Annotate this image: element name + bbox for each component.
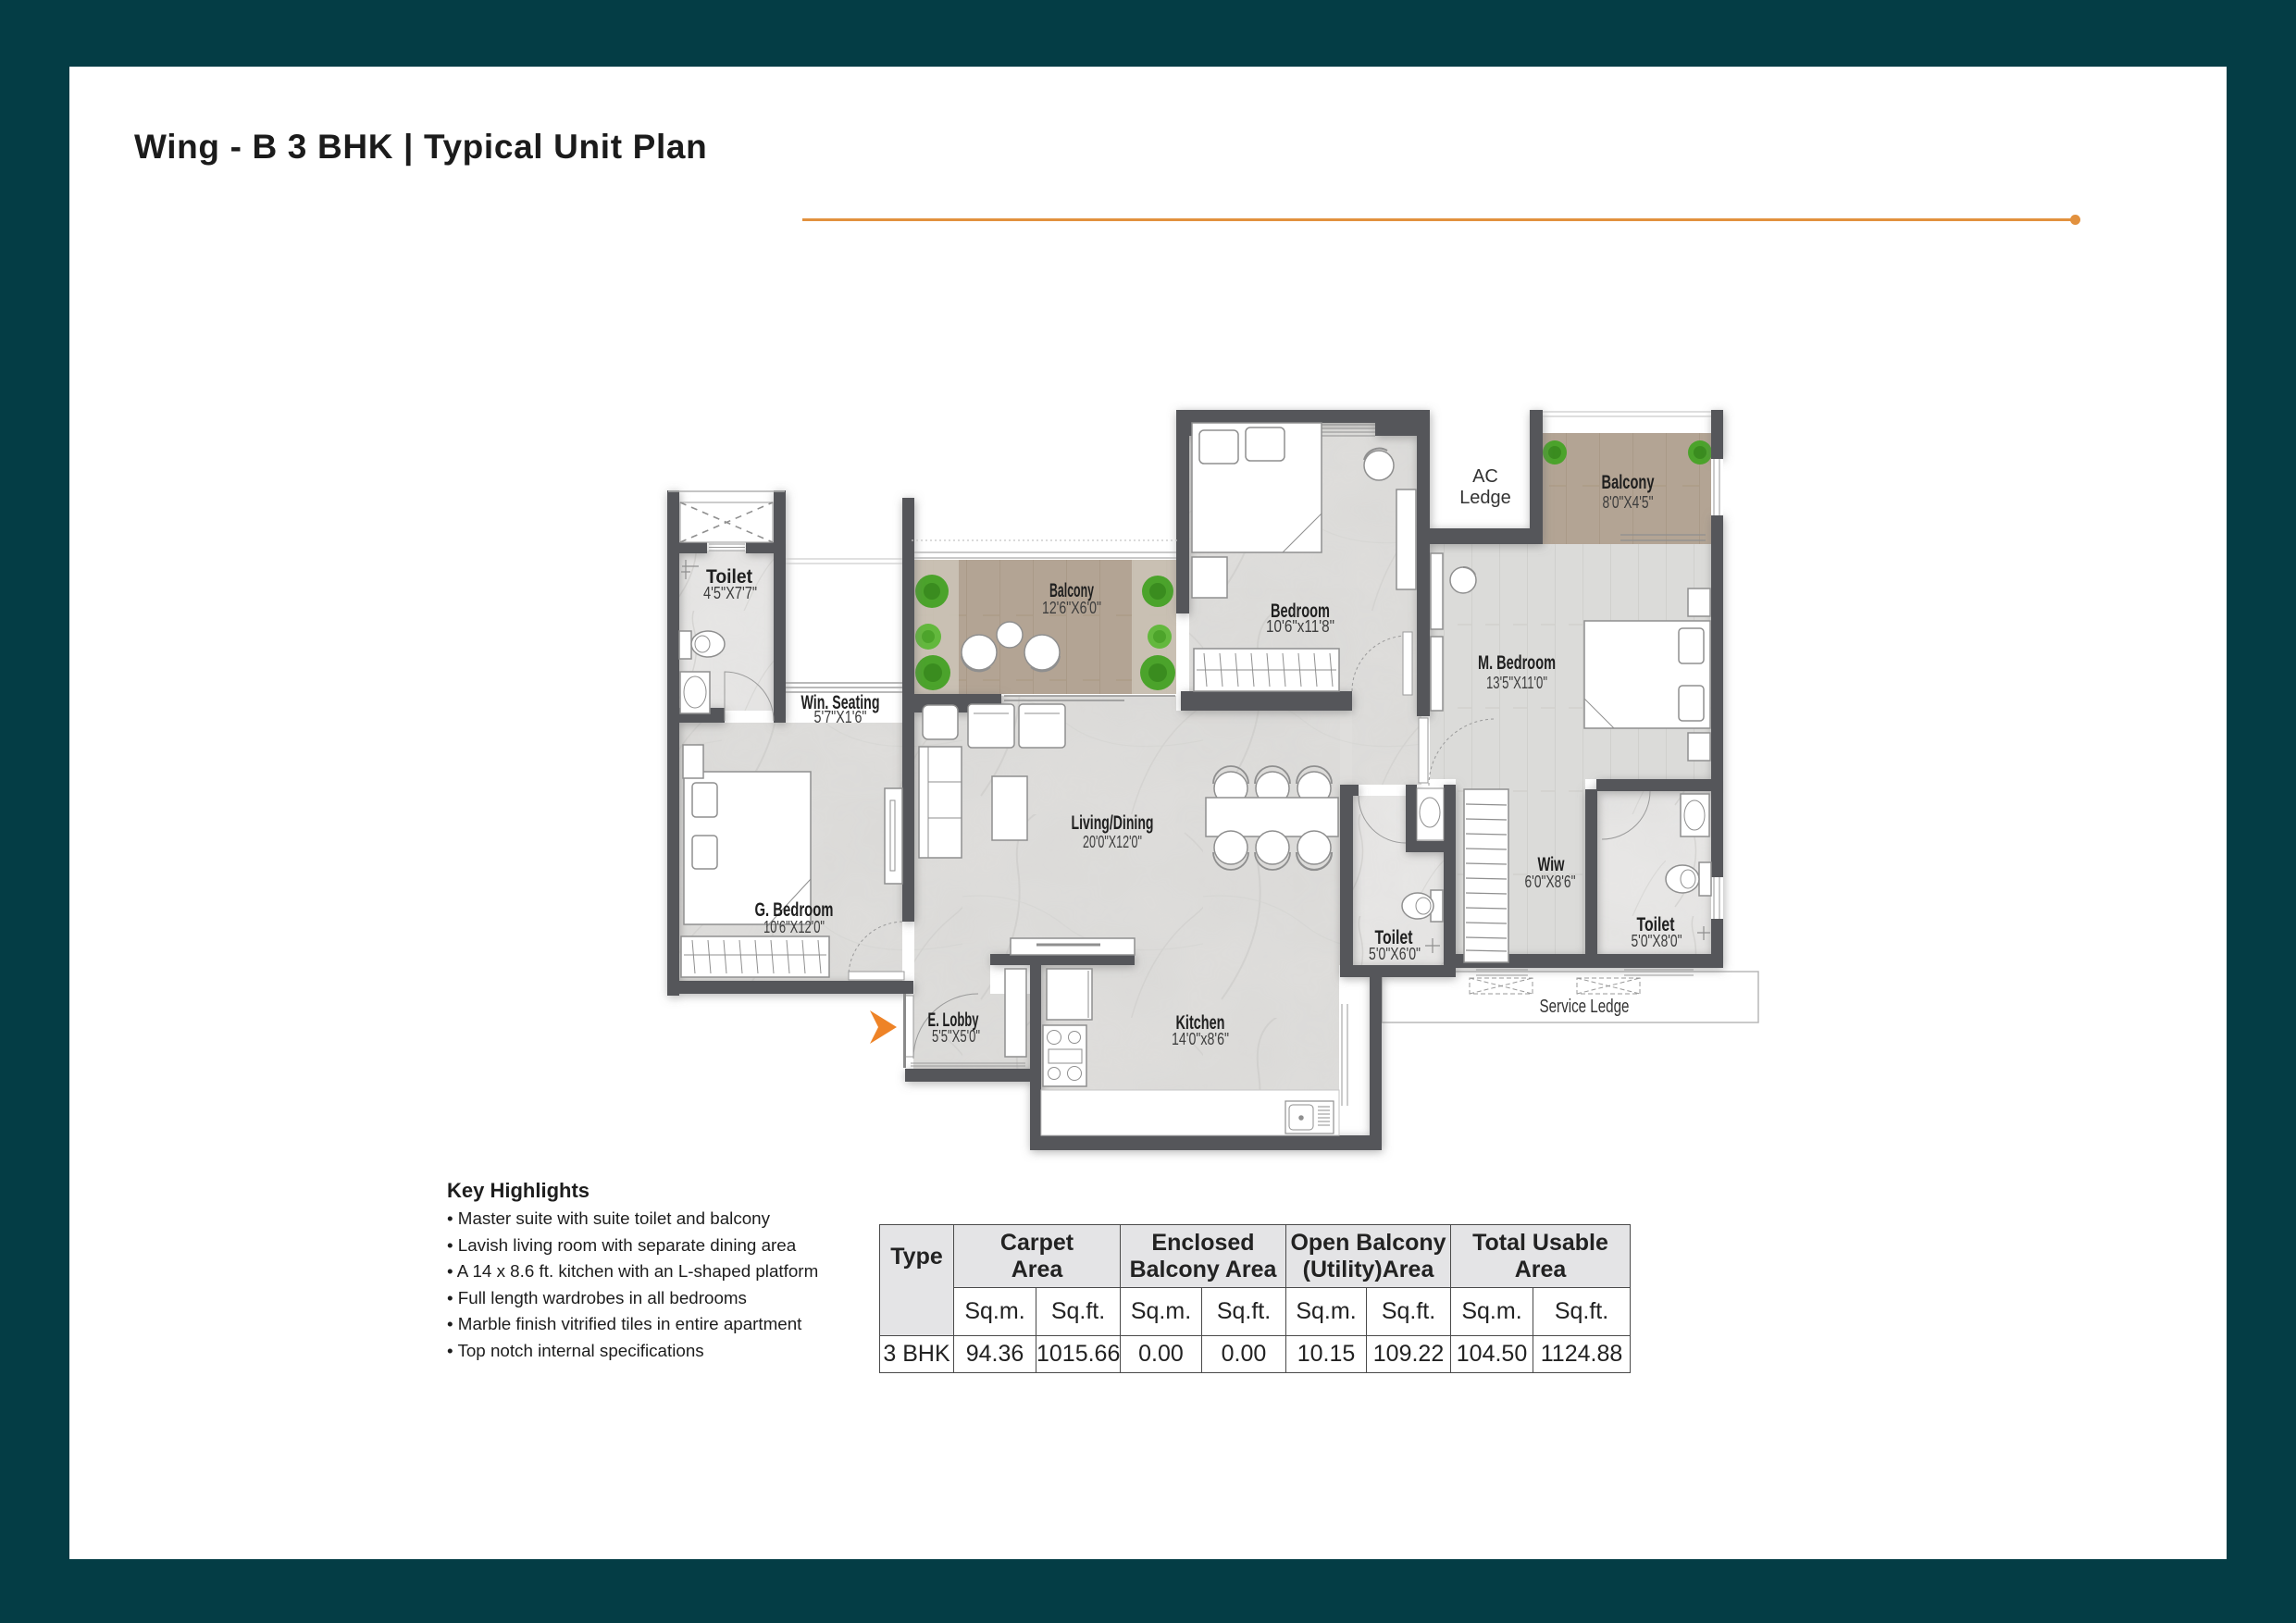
svg-text:5'0"X6'0": 5'0"X6'0" xyxy=(1369,945,1421,963)
svg-text:10'6"x11'8": 10'6"x11'8" xyxy=(1266,617,1334,636)
svg-text:Service Ledge: Service Ledge xyxy=(1540,997,1630,1017)
svg-text:6'0"X8'6": 6'0"X8'6" xyxy=(1525,873,1576,891)
svg-text:10'6"X12'0": 10'6"X12'0" xyxy=(763,918,825,936)
svg-text:Living/Dining: Living/Dining xyxy=(1072,812,1154,834)
svg-text:5'7"X1'6": 5'7"X1'6" xyxy=(814,708,867,726)
svg-text:Balcony: Balcony xyxy=(1602,472,1655,493)
svg-text:20'0"X12'0": 20'0"X12'0" xyxy=(1083,833,1142,851)
svg-text:12'6"X6'0": 12'6"X6'0" xyxy=(1042,599,1101,617)
svg-text:AC: AC xyxy=(1472,466,1498,487)
svg-text:Ledge: Ledge xyxy=(1459,488,1511,508)
svg-text:8'0"X4'5": 8'0"X4'5" xyxy=(1603,493,1654,512)
svg-text:13'5"X11'0": 13'5"X11'0" xyxy=(1486,674,1547,692)
svg-text:14'0"x8'6": 14'0"x8'6" xyxy=(1172,1030,1229,1048)
svg-text:5'0"X8'0": 5'0"X8'0" xyxy=(1632,932,1682,950)
svg-text:5'5"X5'0": 5'5"X5'0" xyxy=(932,1027,980,1046)
svg-text:M. Bedroom: M. Bedroom xyxy=(1478,652,1556,674)
svg-text:4'5"X7'7": 4'5"X7'7" xyxy=(703,584,757,602)
